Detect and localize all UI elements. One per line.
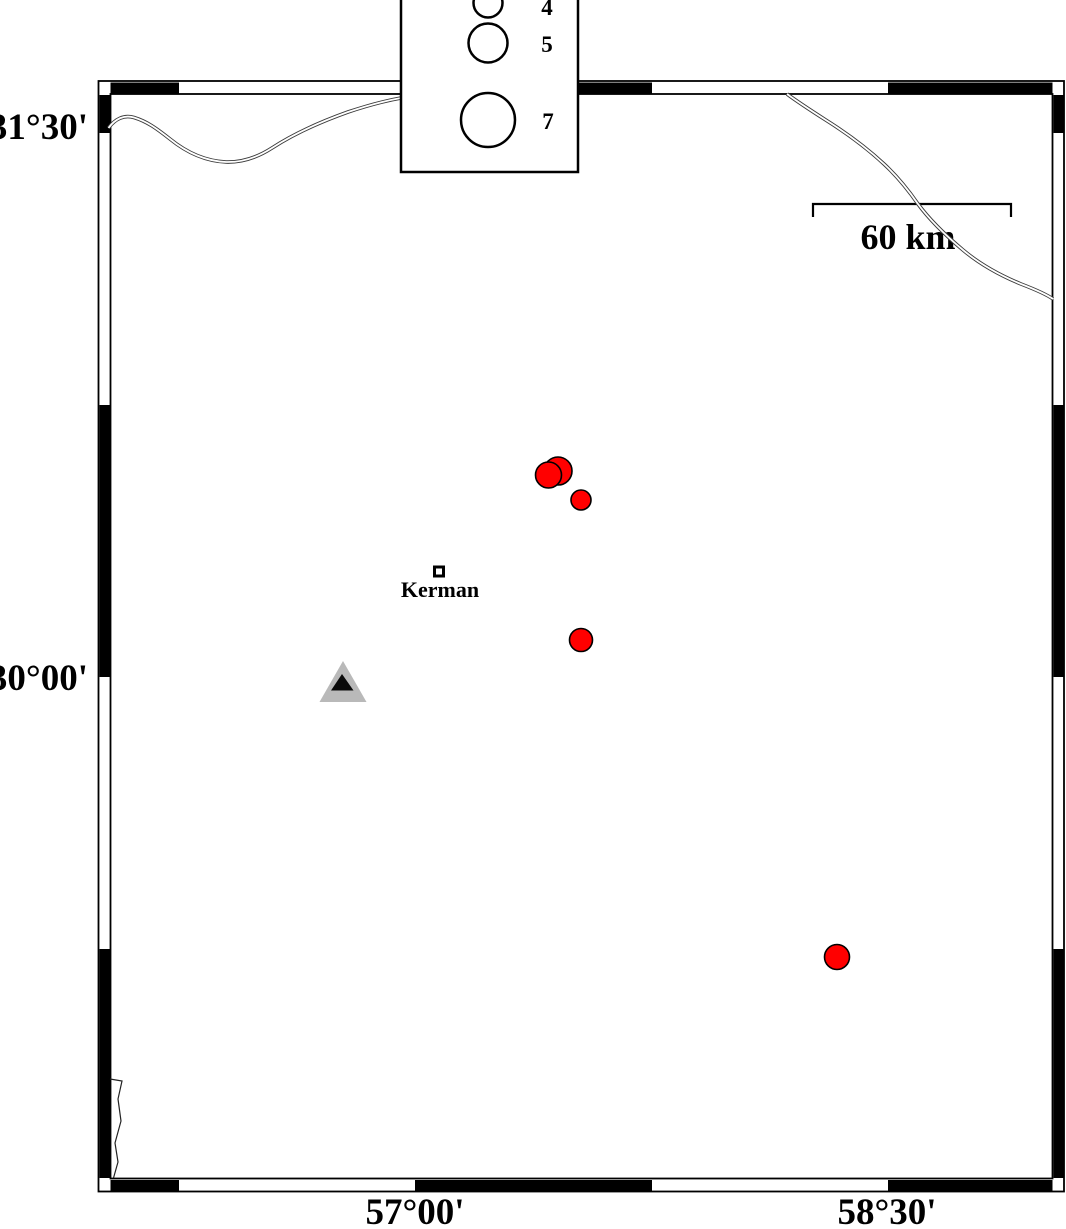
earthquake-marker [571,490,591,510]
border-segment [100,405,111,677]
lat-tick-label-31-30: 31°30' [0,107,88,148]
lon-tick-label-58-30: 58°30' [837,1192,936,1229]
border-segment [1054,949,1065,1178]
earthquake-marker [825,945,850,970]
fault-line-southwest [110,1079,122,1178]
scale-bar-bracket [813,204,1011,217]
lat-tick-label-30-00: 30°00' [0,658,88,699]
legend-label: 7 [542,109,554,134]
fault-line-northwest [109,98,402,162]
city-kerman: Kerman [401,567,479,602]
city-label: Kerman [401,577,479,602]
border-segment [1054,405,1065,677]
border-segment [111,83,180,94]
border-segment [888,83,1053,94]
border-segment [1054,95,1065,133]
map-canvas: 31°30' 30°00' 57°00' 58°30' 60 km 4 5 7 [0,0,1066,1229]
seismic-station-marker [320,661,367,702]
city-marker [435,567,444,576]
scale-bar: 60 km [813,204,1011,257]
border-segment [100,949,111,1178]
legend-circle [474,0,503,18]
earthquake-markers [536,457,850,970]
map-figure: 31°30' 30°00' 57°00' 58°30' 60 km 4 5 7 [0,0,1066,1229]
legend-circle [469,24,508,63]
legend-label: 4 [541,0,553,20]
earthquake-marker [536,462,562,488]
lon-tick-label-57-00: 57°00' [365,1192,464,1229]
earthquake-marker [570,629,593,652]
magnitude-legend: 4 5 7 [401,0,578,172]
border-segment [415,1180,652,1191]
border-segment [888,1180,1053,1191]
border-segment [111,1180,180,1191]
scale-bar-label: 60 km [860,217,955,257]
legend-circle [461,93,515,147]
fault-line-northeast [787,94,1053,299]
legend-label: 5 [541,32,553,57]
